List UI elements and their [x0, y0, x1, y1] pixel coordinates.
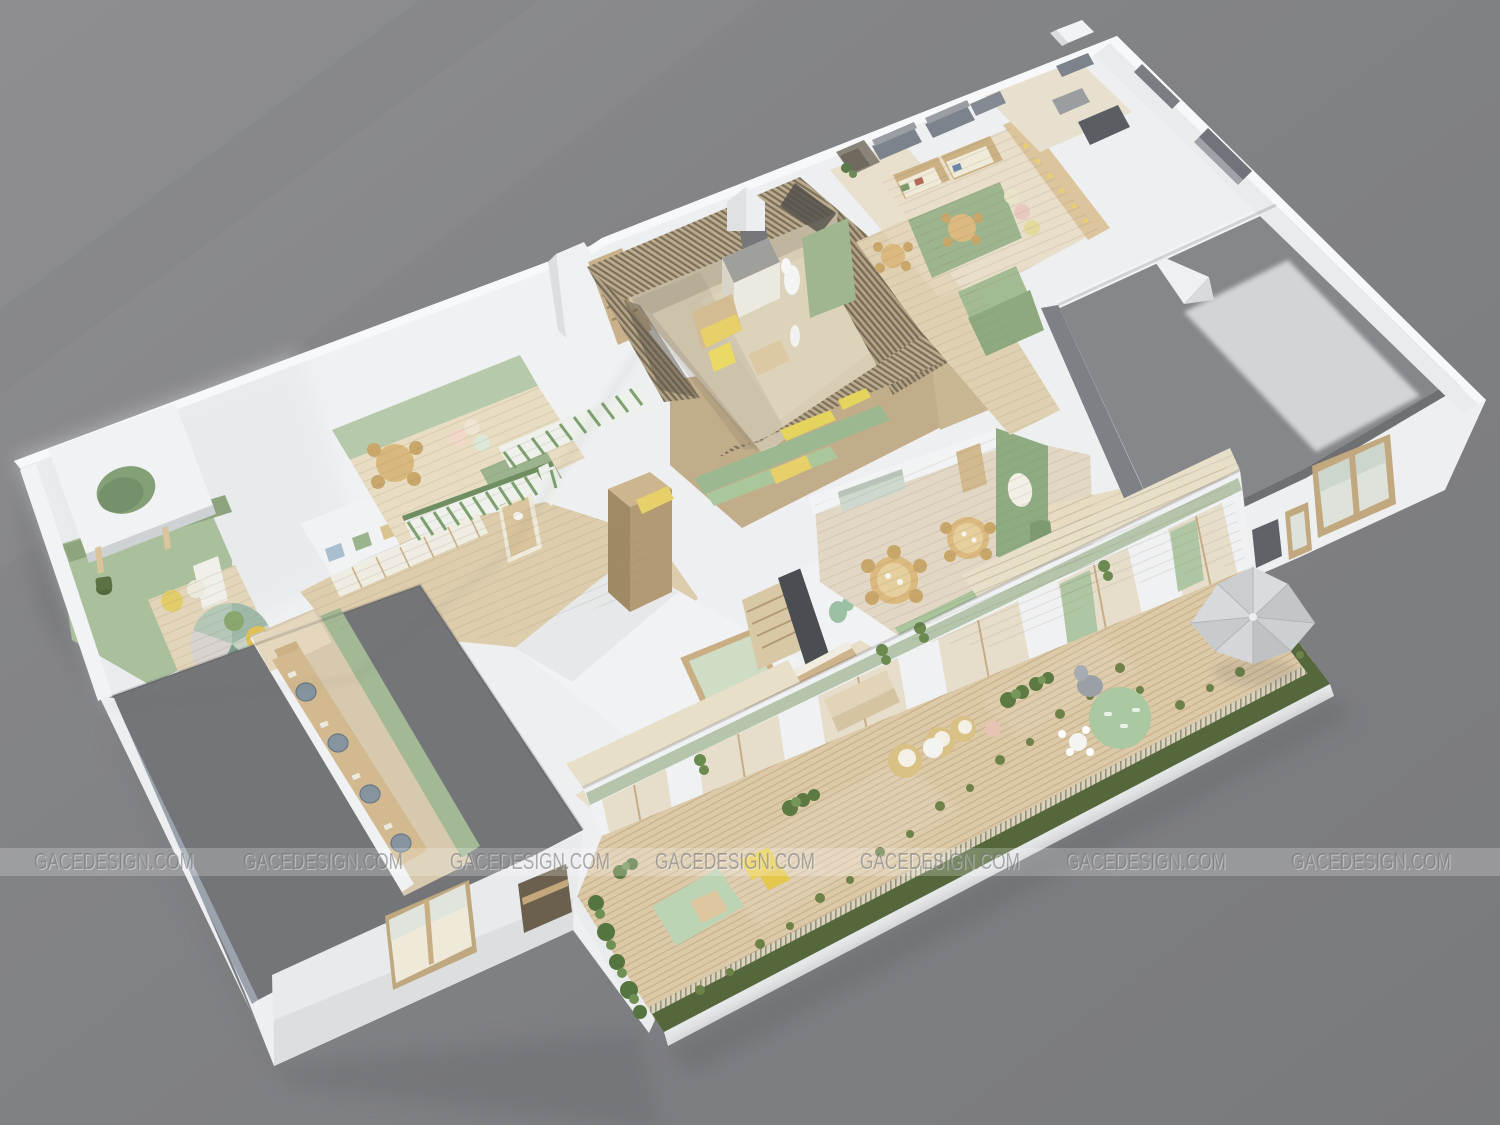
svg-text:GACEDESIGN.COM: GACEDESIGN.COM	[243, 848, 403, 874]
svg-text:GACEDESIGN.COM: GACEDESIGN.COM	[1066, 848, 1226, 874]
svg-text:GACEDESIGN.COM: GACEDESIGN.COM	[860, 848, 1020, 874]
svg-text:GACEDESIGN.COM: GACEDESIGN.COM	[34, 848, 194, 874]
svg-text:GACEDESIGN.COM: GACEDESIGN.COM	[655, 848, 815, 874]
svg-text:GACEDESIGN.COM: GACEDESIGN.COM	[450, 848, 610, 874]
svg-text:GACEDESIGN.COM: GACEDESIGN.COM	[1291, 848, 1451, 874]
